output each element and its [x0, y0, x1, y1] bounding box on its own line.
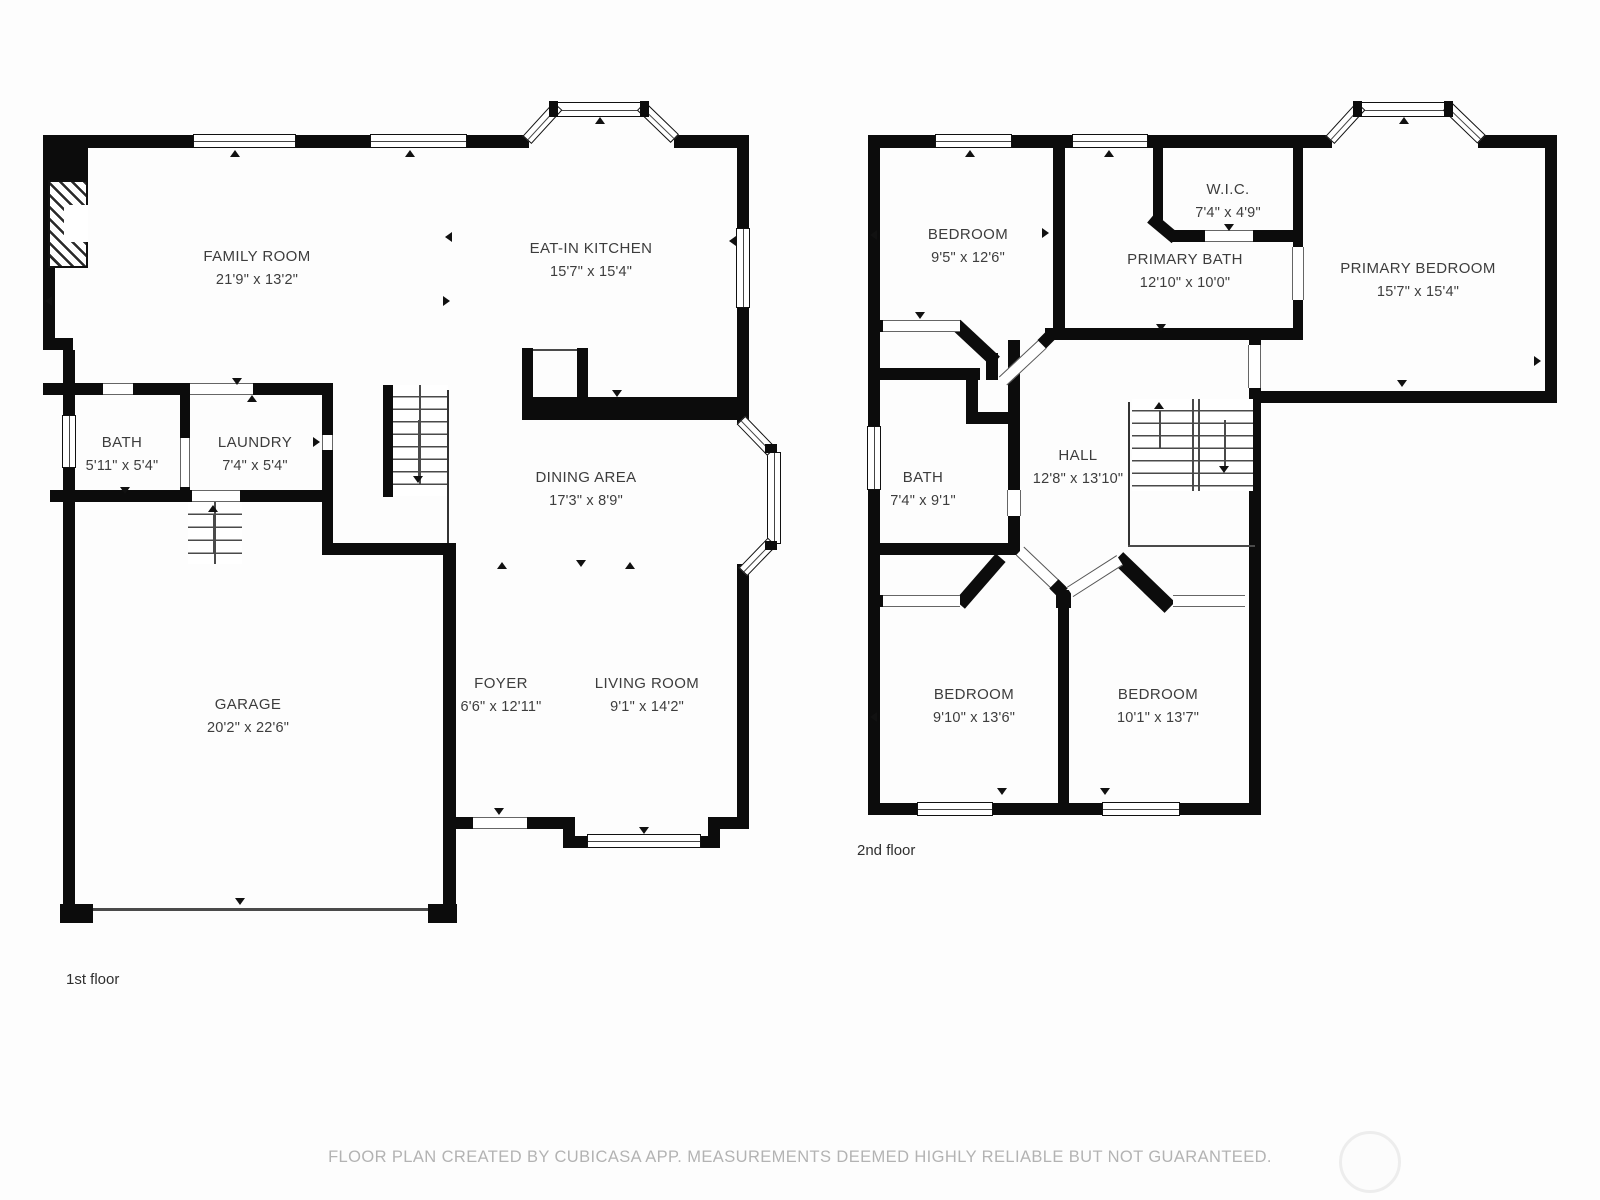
staircase-upper	[1132, 399, 1253, 491]
wall-segment	[43, 338, 73, 350]
floorplan-canvas: FAMILY ROOM 21'9" x 13'2" EAT-IN KITCHEN…	[0, 0, 1600, 1200]
wall-segment	[322, 395, 333, 435]
wall-segment	[296, 135, 370, 148]
bay-cap	[640, 101, 649, 117]
marker-icon	[120, 487, 130, 494]
wall-segment	[737, 564, 749, 819]
stair-arrow-stem	[1224, 420, 1226, 468]
marker-icon	[595, 117, 605, 124]
room-name: BATH	[890, 469, 956, 486]
bay-cap	[1444, 101, 1453, 117]
room-label-primary-bedroom: PRIMARY BEDROOM 15'7" x 15'4"	[1340, 260, 1495, 300]
wall-segment	[1012, 135, 1072, 148]
door-opening	[322, 435, 333, 450]
stair-arrow-stem	[418, 420, 420, 478]
wall-segment	[443, 817, 473, 829]
marker-icon	[1156, 324, 1166, 331]
door-opening	[190, 383, 253, 395]
wall-segment	[708, 817, 749, 829]
room-name: EAT-IN KITCHEN	[530, 240, 653, 257]
stair-arrow-stem	[1159, 410, 1161, 448]
marker-icon	[235, 898, 245, 905]
room-label-bath-2: BATH 7'4" x 9'1"	[890, 469, 956, 509]
wall-segment	[1148, 135, 1332, 148]
window	[1102, 802, 1180, 816]
room-dims: 10'1" x 13'7"	[1117, 710, 1199, 726]
marker-icon	[1224, 224, 1234, 231]
marker-icon	[612, 390, 622, 397]
room-dims: 12'10" x 10'0"	[1127, 275, 1243, 291]
room-dims: 20'2" x 22'6"	[207, 720, 289, 736]
stair-divider-line	[1192, 399, 1194, 491]
wall-segment	[868, 595, 883, 607]
wall-diagonal	[955, 553, 1005, 608]
wall-segment	[737, 145, 749, 230]
room-dims: 7'4" x 4'9"	[1195, 205, 1261, 221]
room-dims: 6'6" x 12'11"	[460, 699, 541, 715]
marker-icon	[1104, 150, 1114, 157]
window	[62, 415, 76, 468]
window	[917, 802, 993, 816]
window	[587, 834, 701, 848]
stair-handrail	[447, 390, 449, 543]
wall-segment	[868, 368, 980, 380]
window	[193, 134, 296, 148]
room-name: GARAGE	[207, 696, 289, 713]
window	[1072, 134, 1148, 148]
room-dims: 15'7" x 15'4"	[1340, 284, 1495, 300]
marker-icon	[639, 827, 649, 834]
marker-icon	[625, 562, 635, 569]
wall-segment	[868, 543, 1020, 555]
door-opening	[192, 490, 240, 502]
wall-segment	[383, 385, 393, 497]
room-name: BEDROOM	[933, 686, 1015, 703]
wall-segment	[1545, 135, 1557, 403]
door-opening	[103, 383, 133, 395]
room-dims: 12'8" x 13'10"	[1033, 471, 1123, 487]
marker-icon	[232, 378, 242, 385]
closet-opening	[883, 320, 960, 332]
room-label-bedroom-3: BEDROOM 10'1" x 13'7"	[1117, 686, 1199, 726]
marker-icon	[230, 150, 240, 157]
front-door-opening	[473, 817, 527, 829]
marker-icon	[1042, 228, 1049, 238]
floor-label-1st: 1st floor	[66, 971, 119, 988]
door-opening	[1248, 345, 1261, 388]
room-dims: 9'1" x 14'2"	[595, 699, 699, 715]
cubicasa-watermark-icon	[1339, 1131, 1401, 1193]
room-dims: 9'5" x 12'6"	[928, 250, 1008, 266]
room-dims: 7'4" x 5'4"	[218, 458, 292, 474]
stair-up-arrow	[1154, 402, 1164, 409]
marker-icon	[494, 808, 504, 815]
marker-icon	[1397, 380, 1407, 387]
marker-icon	[729, 236, 736, 246]
wall-segment	[1170, 230, 1205, 242]
bay-window-center	[1361, 102, 1447, 117]
door-opening	[1007, 490, 1021, 516]
room-label-wic: W.I.C. 7'4" x 4'9"	[1195, 181, 1261, 221]
bay-cap	[549, 101, 558, 117]
wall-diagonal	[1113, 552, 1175, 613]
door-opening-diagonal	[999, 340, 1047, 386]
wall-segment	[180, 395, 190, 438]
room-name: LIVING ROOM	[595, 675, 699, 692]
wall-segment	[43, 383, 103, 395]
stair-up-arrow	[208, 505, 218, 512]
door-opening-diagonal	[1067, 555, 1123, 597]
marker-icon	[997, 788, 1007, 795]
wall-segment	[1053, 148, 1065, 330]
marker-icon	[1534, 356, 1541, 366]
wall-segment	[1045, 328, 1303, 340]
marker-icon	[870, 712, 877, 722]
marker-icon	[45, 296, 52, 306]
room-dims: 7'4" x 9'1"	[890, 493, 956, 509]
room-name: W.I.C.	[1195, 181, 1261, 198]
stair-down-arrow	[1219, 466, 1229, 473]
room-label-laundry: LAUNDRY 7'4" x 5'4"	[218, 434, 292, 474]
marker-icon	[870, 230, 877, 240]
room-name: FAMILY ROOM	[203, 248, 310, 265]
bay-cap	[765, 444, 777, 453]
window	[867, 426, 881, 490]
wall-segment	[322, 543, 456, 555]
room-dims: 17'3" x 8'9"	[535, 493, 636, 509]
pantry-jamb	[577, 348, 588, 400]
room-label-eat-in-kitchen: EAT-IN KITCHEN 15'7" x 15'4"	[530, 240, 653, 280]
wall-segment	[868, 320, 883, 332]
wall-segment	[563, 836, 589, 848]
wall-segment	[527, 817, 565, 829]
wall-segment	[240, 490, 333, 502]
room-dims: 9'10" x 13'6"	[933, 710, 1015, 726]
bay-window-center	[557, 102, 643, 117]
wall-segment	[1293, 148, 1303, 247]
room-name: BEDROOM	[928, 226, 1008, 243]
wall-segment	[43, 135, 193, 148]
garage-door-line	[93, 908, 428, 911]
stair-arrow-stem	[213, 514, 215, 554]
marker-icon	[1399, 117, 1409, 124]
fireplace-inset	[64, 205, 88, 242]
marker-icon	[1100, 788, 1110, 795]
marker-icon	[405, 150, 415, 157]
wall-segment	[63, 467, 75, 910]
wall-segment	[253, 383, 333, 395]
room-label-family-room: FAMILY ROOM 21'9" x 13'2"	[203, 248, 310, 288]
door-opening	[1292, 247, 1304, 300]
wall-segment	[1293, 300, 1303, 340]
marker-icon	[247, 395, 257, 402]
room-name: DINING AREA	[535, 469, 636, 486]
wall-segment	[443, 553, 456, 913]
room-name: BEDROOM	[1117, 686, 1199, 703]
room-label-hall: HALL 12'8" x 13'10"	[1033, 447, 1123, 487]
room-label-dining-area: DINING AREA 17'3" x 8'9"	[535, 469, 636, 509]
wall-segment	[986, 353, 998, 380]
wall-segment	[133, 383, 190, 395]
door-opening	[180, 438, 190, 487]
room-name: HALL	[1033, 447, 1123, 464]
marker-icon	[915, 312, 925, 319]
room-name: PRIMARY BATH	[1127, 251, 1243, 268]
room-label-bath-1: BATH 5'11" x 5'4"	[86, 434, 159, 474]
bay-cap	[1353, 101, 1362, 117]
room-name: FOYER	[460, 675, 541, 692]
bay-window-center	[767, 452, 781, 544]
wall-segment	[1058, 604, 1069, 815]
marker-icon	[497, 562, 507, 569]
marker-icon	[443, 296, 450, 306]
stair-handrail	[1128, 402, 1130, 546]
room-label-foyer: FOYER 6'6" x 12'11"	[460, 675, 541, 715]
room-name: BATH	[86, 434, 159, 451]
door-opening	[883, 595, 960, 607]
wall-segment	[868, 135, 935, 148]
landing-edge-line	[1128, 545, 1255, 547]
room-label-garage: GARAGE 20'2" x 22'6"	[207, 696, 289, 736]
window	[935, 134, 1012, 148]
room-label-living-room: LIVING ROOM 9'1" x 14'2"	[595, 675, 699, 715]
stair-divider-line	[1198, 399, 1200, 491]
wall-segment	[868, 135, 880, 428]
room-label-primary-bath: PRIMARY BATH 12'10" x 10'0"	[1127, 251, 1243, 291]
room-dims: 15'7" x 15'4"	[530, 264, 653, 280]
room-label-bedroom-1: BEDROOM 9'5" x 12'6"	[928, 226, 1008, 266]
pantry-opening-line	[533, 349, 577, 351]
marker-icon	[576, 560, 586, 567]
room-label-bedroom-2: BEDROOM 9'10" x 13'6"	[933, 686, 1015, 726]
door-opening	[1205, 230, 1253, 242]
wall-segment	[522, 397, 749, 420]
wall-segment	[43, 160, 88, 182]
wall-segment	[60, 904, 93, 923]
door-opening	[1173, 595, 1245, 607]
floor-label-2nd: 2nd floor	[857, 842, 915, 859]
wall-segment	[737, 307, 749, 399]
pantry-jamb	[522, 348, 533, 400]
marker-icon	[313, 437, 320, 447]
wall-segment	[1255, 391, 1557, 403]
window	[736, 228, 750, 308]
marker-icon	[445, 232, 452, 242]
wall-segment	[467, 135, 529, 148]
room-name: LAUNDRY	[218, 434, 292, 451]
bay-cap	[765, 541, 777, 550]
marker-icon	[965, 150, 975, 157]
stair-down-arrow	[413, 476, 423, 483]
wall-segment	[868, 490, 880, 815]
room-dims: 21'9" x 13'2"	[203, 272, 310, 288]
room-name: PRIMARY BEDROOM	[1340, 260, 1495, 277]
room-dims: 5'11" x 5'4"	[86, 458, 159, 474]
window	[370, 134, 467, 148]
wall-segment	[1153, 148, 1163, 220]
